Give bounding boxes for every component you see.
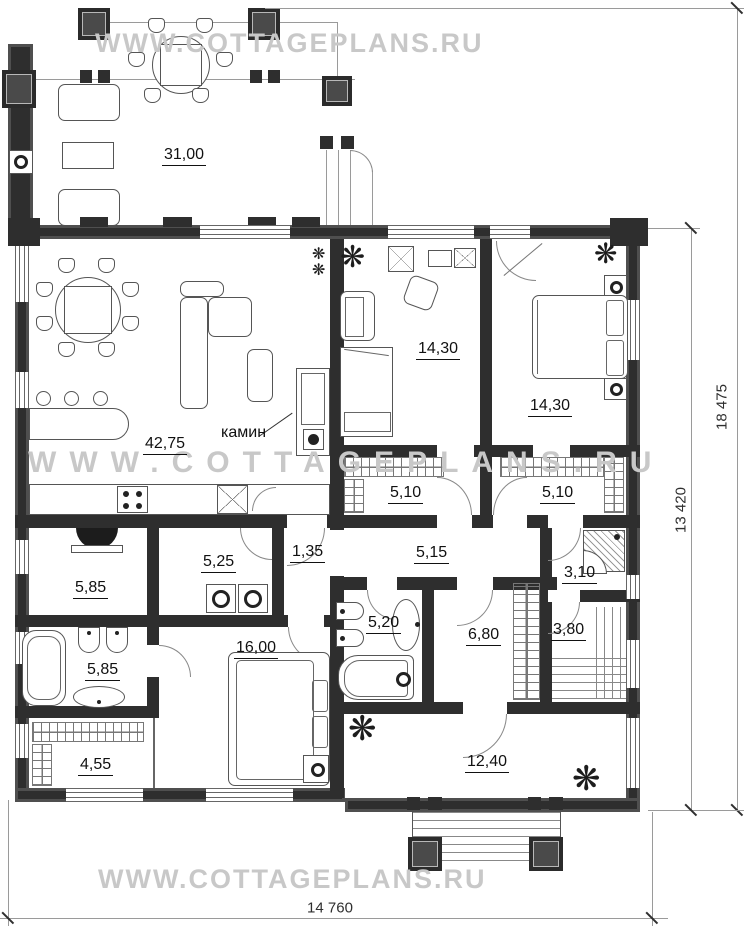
extension-line <box>265 8 744 9</box>
window <box>388 225 474 239</box>
wall <box>345 798 640 812</box>
wardrobe-hangers <box>32 744 52 786</box>
room-label-terrace: 12,40 <box>465 753 509 773</box>
wardrobe-hangers <box>513 583 540 700</box>
room-label-bedroom-right: 14,30 <box>528 397 572 417</box>
dimension-line <box>691 228 692 810</box>
window <box>15 540 29 574</box>
door-opening <box>147 645 159 677</box>
chair <box>36 282 53 297</box>
dining-table-top <box>64 286 112 334</box>
chair <box>58 342 75 357</box>
bed-pillow <box>606 300 624 336</box>
ottoman <box>247 349 273 402</box>
door-arc <box>457 590 493 626</box>
room-label-shower: 3,10 <box>562 564 597 584</box>
dimension-inner-depth: 13 420 <box>673 487 690 533</box>
pilaster <box>407 797 420 810</box>
chair <box>98 342 115 357</box>
washing-machine-drum <box>212 590 230 608</box>
coffee-table <box>62 142 114 169</box>
room-label-living: 42,75 <box>143 435 187 455</box>
wardrobe-hangers <box>344 479 364 513</box>
rail-curve <box>350 150 373 173</box>
plant-icon: ❋ <box>348 712 377 746</box>
fireplace-label: камин <box>221 424 266 442</box>
door-opening <box>287 515 327 528</box>
partition-line <box>153 718 155 788</box>
bed-pillow <box>344 412 391 432</box>
porch-column <box>529 837 563 871</box>
desk-icon <box>388 246 414 272</box>
corner-block <box>8 218 40 246</box>
bed-pillow <box>312 716 328 748</box>
door-opening <box>437 515 472 528</box>
pilaster <box>341 136 354 149</box>
dimension-line <box>737 8 738 810</box>
pilaster <box>528 797 541 810</box>
chair <box>122 282 139 297</box>
room-label-bedroom-left: 14,30 <box>416 340 460 360</box>
pilaster <box>320 136 333 149</box>
chair <box>122 316 139 331</box>
door-arc <box>240 528 272 560</box>
room-label-utility: 5,85 <box>73 579 108 599</box>
corner-sofa <box>208 297 252 337</box>
plant-icon: ❋ <box>572 762 601 796</box>
window <box>15 372 29 408</box>
desk <box>428 250 452 267</box>
plant-icon: ❋ <box>340 243 365 273</box>
room-label-veranda: 31,00 <box>162 146 206 166</box>
stove-icon <box>117 486 148 513</box>
wardrobe-hangers <box>32 722 144 742</box>
dimension-line <box>0 918 668 919</box>
plant-icon: ❋ <box>594 240 617 268</box>
plant-icon: ❋ <box>312 262 325 278</box>
wall <box>15 788 345 802</box>
window <box>15 724 29 758</box>
pilaster <box>268 70 280 83</box>
chair <box>58 258 75 273</box>
room-label-laundry: 5,25 <box>201 553 236 573</box>
door-arc <box>548 528 581 561</box>
door-arc <box>463 714 507 758</box>
pilaster <box>250 70 262 83</box>
room-label-wardrobe-right: 5,10 <box>540 484 575 504</box>
door-opening <box>493 515 527 528</box>
wall <box>15 515 640 528</box>
pilaster <box>163 217 192 227</box>
dimension-overall-depth: 18 475 <box>714 384 731 430</box>
fireplace-inner <box>301 373 325 425</box>
room-label-bedroom-master: 16,00 <box>234 639 278 659</box>
door-opening <box>463 702 507 714</box>
step-rail-line <box>338 150 339 225</box>
chair <box>36 316 53 331</box>
armchair-seat <box>345 297 364 337</box>
dimension-overall-width: 14 760 <box>307 900 353 917</box>
window <box>626 575 640 599</box>
window <box>626 640 640 688</box>
step-rail-line <box>372 172 373 225</box>
room-label-wardrobe-left: 5,10 <box>388 484 423 504</box>
bar-stool <box>64 391 79 406</box>
desk-chair <box>402 274 440 312</box>
watermark-bottom: WWW.COTTAGEPLANS.RU <box>98 866 486 893</box>
room-label-vestibule: 1,35 <box>290 543 325 563</box>
step-rail-line <box>326 150 327 225</box>
chair <box>144 88 161 103</box>
window-swing-arc <box>496 241 536 281</box>
corner-sofa <box>180 297 208 409</box>
sofa-module <box>180 281 224 297</box>
window <box>15 246 29 302</box>
bed-pillow <box>312 680 328 712</box>
floor-plan: WWW.COTTAGEPLANS.RU WWW.COTTAGEPLANS.RU … <box>0 0 747 934</box>
wall <box>15 706 159 718</box>
chair <box>192 88 209 103</box>
nightstand-ring-icon <box>610 281 623 294</box>
room-label-sauna: 3,80 <box>551 621 586 641</box>
column <box>2 70 36 108</box>
drain-ring-icon <box>14 155 28 169</box>
wall <box>15 225 640 239</box>
room-label-hallway: 5,15 <box>414 544 449 564</box>
terrace-door-window <box>200 225 290 239</box>
pilaster <box>428 797 442 810</box>
boiler-base <box>71 545 123 553</box>
pilaster <box>80 70 92 83</box>
door-opening <box>457 577 493 590</box>
room-label-dressing: 6,80 <box>466 626 501 646</box>
veranda-edge-line <box>94 22 338 23</box>
pilaster <box>549 797 563 810</box>
desk-icon <box>454 248 476 268</box>
window <box>626 718 640 788</box>
nightstand-ring-icon <box>610 383 623 396</box>
kitchen-sink-icon <box>217 485 248 514</box>
window <box>206 788 293 802</box>
wall <box>272 528 284 615</box>
watermark-middle: WWW.COTTAGEPLANS.RU <box>28 448 664 478</box>
door-arc <box>493 477 527 515</box>
bath-drain <box>396 672 411 687</box>
door-opening <box>548 590 580 602</box>
bed-pillow <box>606 340 624 376</box>
door-arc <box>159 645 191 677</box>
bar-stool <box>93 391 108 406</box>
nightstand-ring-icon <box>311 763 325 777</box>
chair <box>98 258 115 273</box>
room-label-wc: 5,20 <box>366 614 401 634</box>
extension-line <box>652 812 653 926</box>
passage-opening <box>330 530 344 576</box>
pilaster <box>80 217 108 227</box>
kitchen-counter <box>29 484 330 515</box>
pilaster <box>292 217 320 227</box>
pilaster <box>98 70 110 83</box>
bar-stool <box>36 391 51 406</box>
window <box>490 225 530 239</box>
bed-line <box>537 300 538 374</box>
sauna-bench <box>552 658 626 700</box>
wall <box>15 615 161 627</box>
room-label-bathroom: 5,85 <box>85 661 120 681</box>
pedestal-sink <box>73 686 125 708</box>
washing-machine-drum <box>244 590 262 608</box>
door-opening <box>367 577 397 590</box>
bathtub-inner <box>27 636 61 700</box>
door-opening <box>288 615 324 627</box>
extension-line <box>648 810 744 811</box>
wall <box>480 239 492 528</box>
column <box>322 76 352 106</box>
window <box>626 300 640 360</box>
bar-counter <box>29 408 129 440</box>
door-opening <box>548 515 583 528</box>
sofa <box>58 84 120 121</box>
wall <box>422 590 434 702</box>
door-arc <box>437 477 472 515</box>
watermark-top: WWW.COTTAGEPLANS.RU <box>95 30 483 57</box>
room-label-closet: 4,55 <box>78 756 113 776</box>
extension-line <box>8 800 9 926</box>
window <box>66 788 143 802</box>
wall <box>147 528 159 627</box>
